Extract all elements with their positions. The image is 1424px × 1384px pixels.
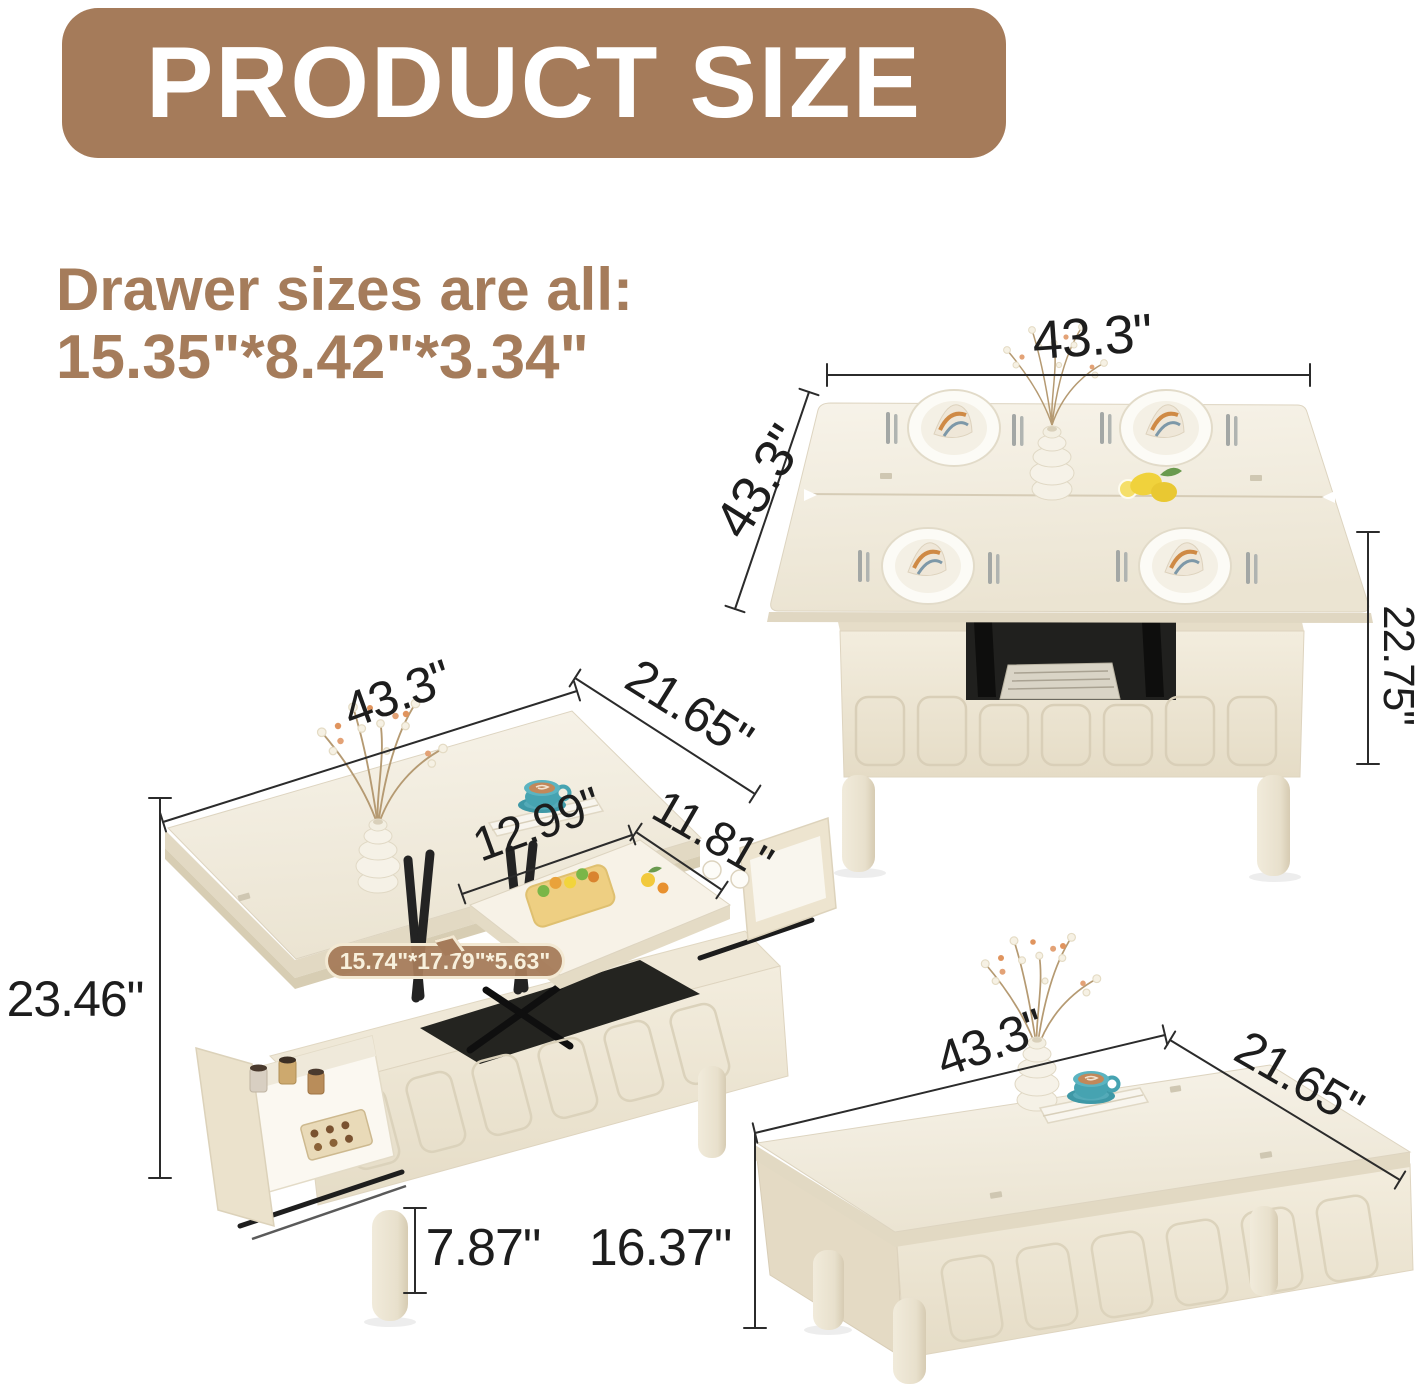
drawer-note-line2: 15.35"*8.42"*3.34": [56, 323, 633, 392]
fruit-illustration: [641, 873, 655, 887]
banner-title: PRODUCT SIZE: [146, 26, 922, 141]
product-size-banner: PRODUCT SIZE: [62, 8, 1006, 158]
dim-label-lift-total-height: 23.46": [7, 970, 144, 1028]
dim-label-dining-width: 43.3": [1030, 302, 1153, 372]
product-size-infographic: PRODUCT SIZE Drawer sizes are all: 15.35…: [0, 0, 1424, 1384]
dim-label-lift-leg-height: 7.87": [426, 1218, 541, 1278]
dining-table-top: [767, 403, 1373, 623]
dining-table-base: [838, 622, 1304, 777]
drawer-size-note: Drawer sizes are all: 15.35"*8.42"*3.34": [56, 256, 633, 393]
dim-label-closed-height: 16.37": [589, 1218, 732, 1278]
drawer-note-line1: Drawer sizes are all:: [56, 256, 633, 323]
left-drawer-open: [196, 1036, 406, 1239]
coffee-table-illustration: [560, 930, 1424, 1384]
coffee-table-figure: [560, 930, 1424, 1384]
dining-table-legs: [834, 775, 1301, 882]
storage-size-pill: 15.74"*17.79"*5.63": [325, 943, 565, 979]
storage-size-text: 15.74"*17.79"*5.63": [340, 948, 551, 975]
dim-label-dining-height: 22.75": [1373, 605, 1423, 725]
